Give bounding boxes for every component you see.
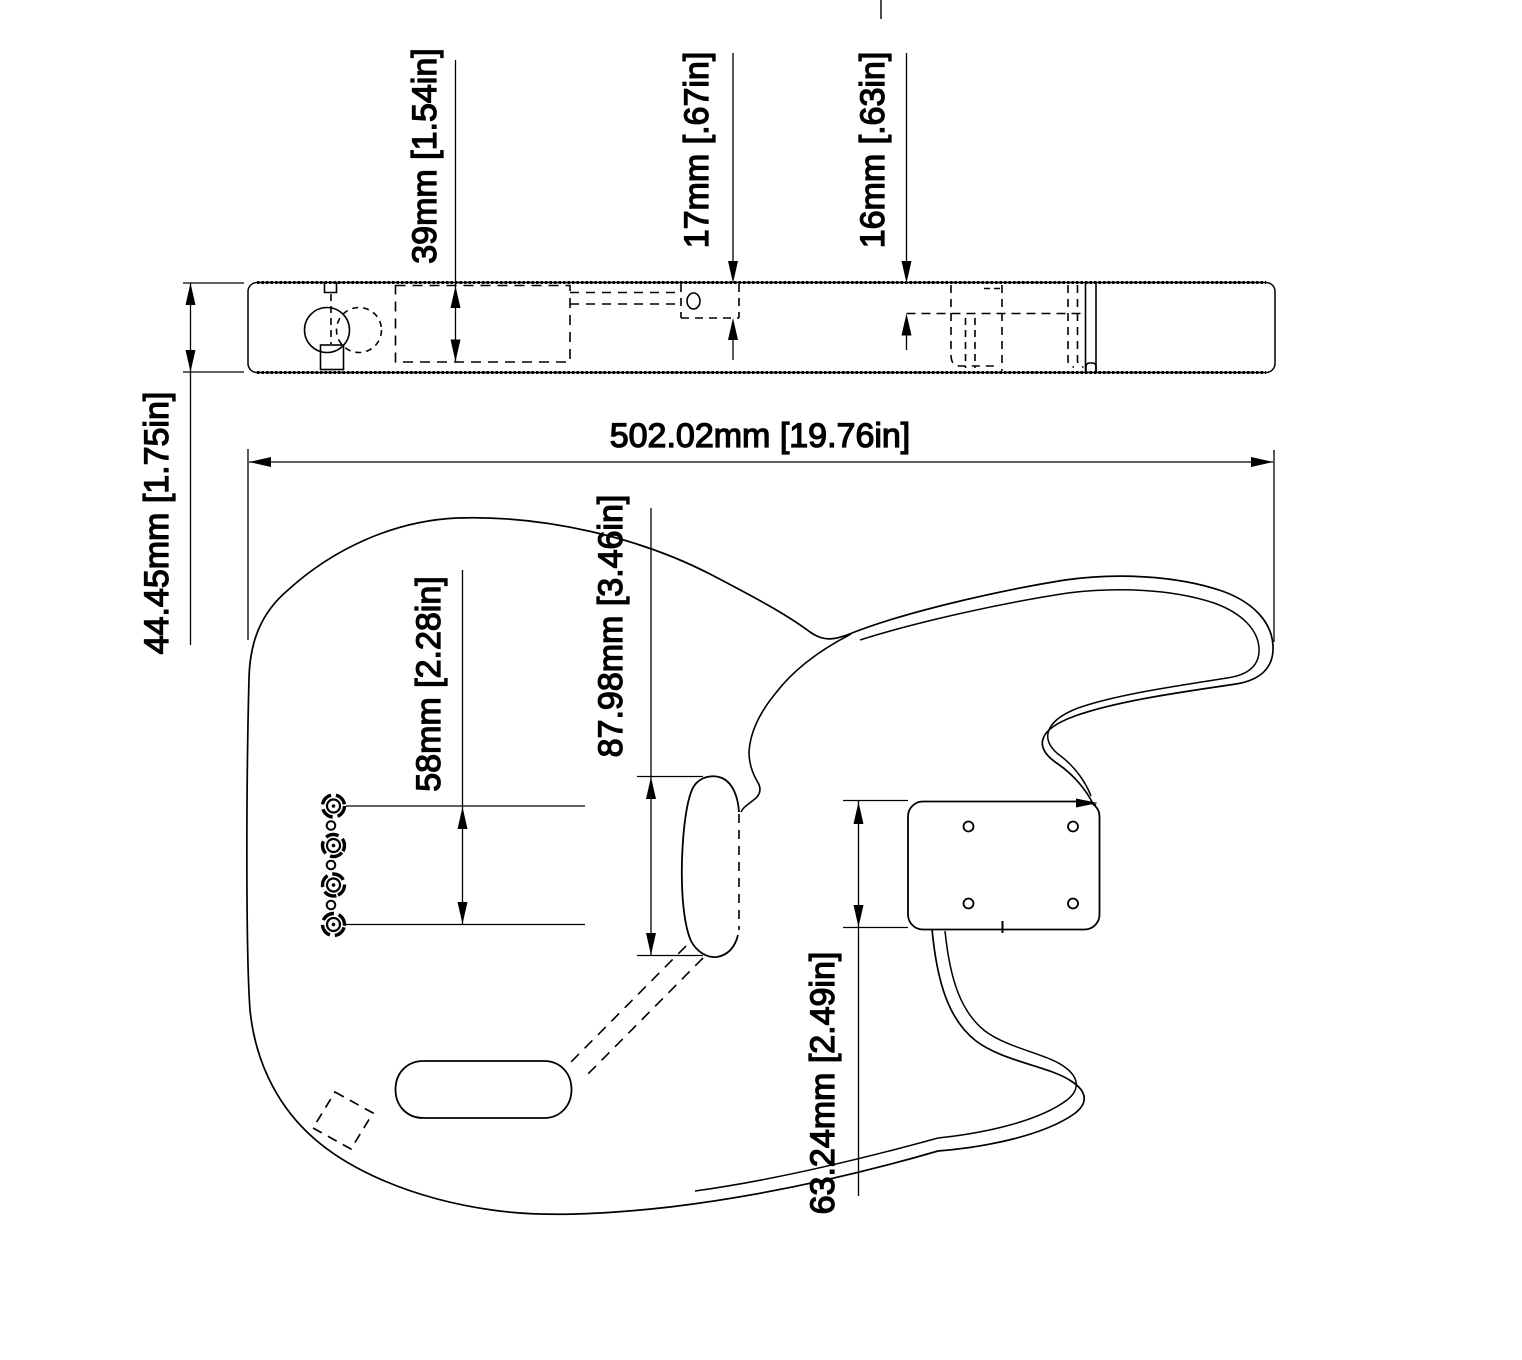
bridge-plate-outline — [908, 802, 1100, 930]
ferrule-top-notch — [325, 283, 337, 293]
jack-hole-hidden — [313, 1092, 373, 1149]
neck-notch-contour — [741, 634, 851, 812]
dim-ferrule-spacing: 58mm [2.28in] — [346, 570, 585, 925]
control-cavity-outline — [396, 1061, 572, 1118]
dim-label-body-length: 502.02mm [19.76in] — [610, 417, 911, 455]
bridge-screw-hole-4 — [1068, 899, 1078, 909]
ferrule-2 — [318, 830, 349, 861]
pilot-hole-3 — [327, 901, 336, 910]
truss-channel-line-1 — [571, 946, 686, 1062]
dim-bridge-plate-height: 63.24mm [2.49in] — [804, 801, 908, 1215]
dim-cavity-depth: 39mm [1.54in] — [406, 48, 461, 361]
technical-drawing-page: 39mm [1.54in] 17mm [.67in] 16mm [.63in] … — [0, 0, 1522, 1360]
ferrule-1 — [323, 795, 345, 817]
dim-bridge-recess-depth: 16mm [.63in] — [854, 52, 912, 350]
bass-body-blueprint: 39mm [1.54in] 17mm [.67in] 16mm [.63in] … — [0, 0, 1522, 1360]
dim-body-thickness: 44.45mm [1.75in] — [138, 283, 244, 654]
side-ferrule-detail — [305, 283, 382, 370]
ferrule-4 — [320, 911, 347, 938]
neck-screw-hole — [687, 293, 700, 309]
dim-label-cavity-depth: 39mm [1.54in] — [406, 48, 444, 263]
dim-label-bridge-recess-depth: 16mm [.63in] — [854, 52, 892, 249]
neck-pocket-outline — [682, 776, 739, 957]
dim-label-body-thickness: 44.45mm [1.75in] — [138, 392, 176, 655]
dimensions: 39mm [1.54in] 17mm [.67in] 16mm [.63in] … — [138, 48, 1274, 1214]
truss-channel-line-2 — [585, 958, 703, 1077]
pilot-hole-2 — [327, 861, 336, 870]
bridge-screw-hole-3 — [964, 899, 974, 909]
front-view — [247, 518, 1273, 1215]
bridge-plate — [908, 802, 1100, 934]
bridge-hidden-details — [907, 283, 1097, 372]
bridge-screw-hole-1 — [964, 822, 974, 832]
dim-label-neck-pocket-depth: 17mm [.67in] — [678, 52, 716, 249]
dim-label-ferrule-spacing: 58mm [2.28in] — [410, 576, 448, 791]
ferrule-3 — [320, 872, 347, 899]
body-slab-outline — [248, 283, 1275, 373]
body-outline-outer — [247, 518, 1273, 1215]
dim-label-neck-pocket-length: 87.98mm [3.46in] — [592, 495, 630, 758]
dim-neck-pocket-length: 87.98mm [3.46in] — [592, 495, 703, 956]
pilot-hole-1 — [327, 821, 336, 830]
dim-body-length: 502.02mm [19.76in] — [248, 417, 1274, 642]
side-view — [248, 283, 1275, 373]
dim-neck-pocket-depth: 17mm [.67in] — [678, 52, 738, 360]
dim-label-bridge-plate-height: 63.24mm [2.49in] — [804, 952, 842, 1215]
bridge-screw-hole-2 — [1068, 822, 1078, 832]
string-ferrules — [318, 795, 349, 938]
neck-pocket-hidden — [681, 284, 739, 318]
control-cavity-hidden — [396, 286, 571, 363]
